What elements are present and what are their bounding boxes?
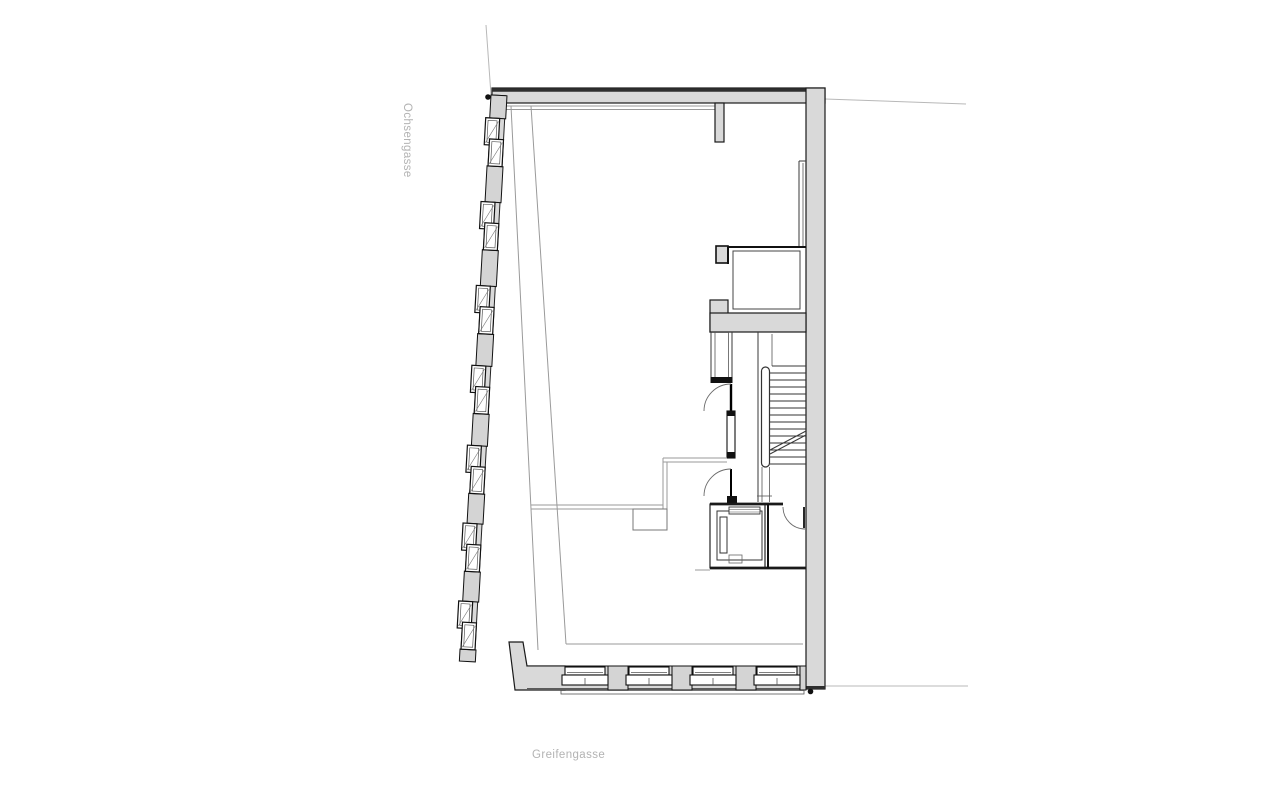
- top-exterior-wall: [492, 88, 825, 142]
- door-swing-arc: [704, 469, 731, 496]
- floor-plan-page: Ochsengasse Greifengasse: [0, 0, 1263, 800]
- bottom-window-unit: [754, 667, 800, 685]
- stair-break-line: [770, 431, 806, 450]
- left-facade-wall: [455, 95, 507, 662]
- wall-segment: [727, 411, 735, 458]
- right-wall-shaft: [799, 161, 806, 248]
- room-entry-post: [716, 246, 728, 263]
- elevator-counterweight: [720, 517, 727, 553]
- stair-treads: [770, 373, 806, 464]
- survey-dot: [808, 689, 814, 695]
- staircase: [757, 332, 806, 502]
- bottom-window-unit: [626, 667, 672, 685]
- duct-closet: [711, 332, 733, 383]
- street-label-greifengasse: Greifengasse: [532, 749, 605, 761]
- site-boundary-lines: [486, 25, 968, 686]
- bottom-window-unit: [562, 667, 608, 685]
- stair-break-line: [770, 435, 806, 454]
- partition-lines: [531, 458, 727, 530]
- stair-handrail: [762, 367, 770, 467]
- interior-wall-band: [710, 313, 806, 332]
- bottom-window-unit: [690, 667, 736, 685]
- street-label-ochsengasse: Ochsengasse: [401, 103, 413, 178]
- survey-dot: [485, 94, 491, 100]
- corridor-doors: [704, 384, 737, 503]
- door-swing-arc: [783, 507, 805, 529]
- elevator: [710, 504, 765, 568]
- right-exterior-wall: [806, 88, 825, 689]
- bottom-facade: [527, 666, 806, 694]
- top-wall-stub: [715, 103, 724, 142]
- floor-plan-drawing: [0, 0, 1263, 800]
- elevator-door: [729, 507, 760, 514]
- door-swing-arc: [704, 384, 731, 411]
- partition-notch: [633, 509, 667, 530]
- bottom-sill: [561, 691, 804, 695]
